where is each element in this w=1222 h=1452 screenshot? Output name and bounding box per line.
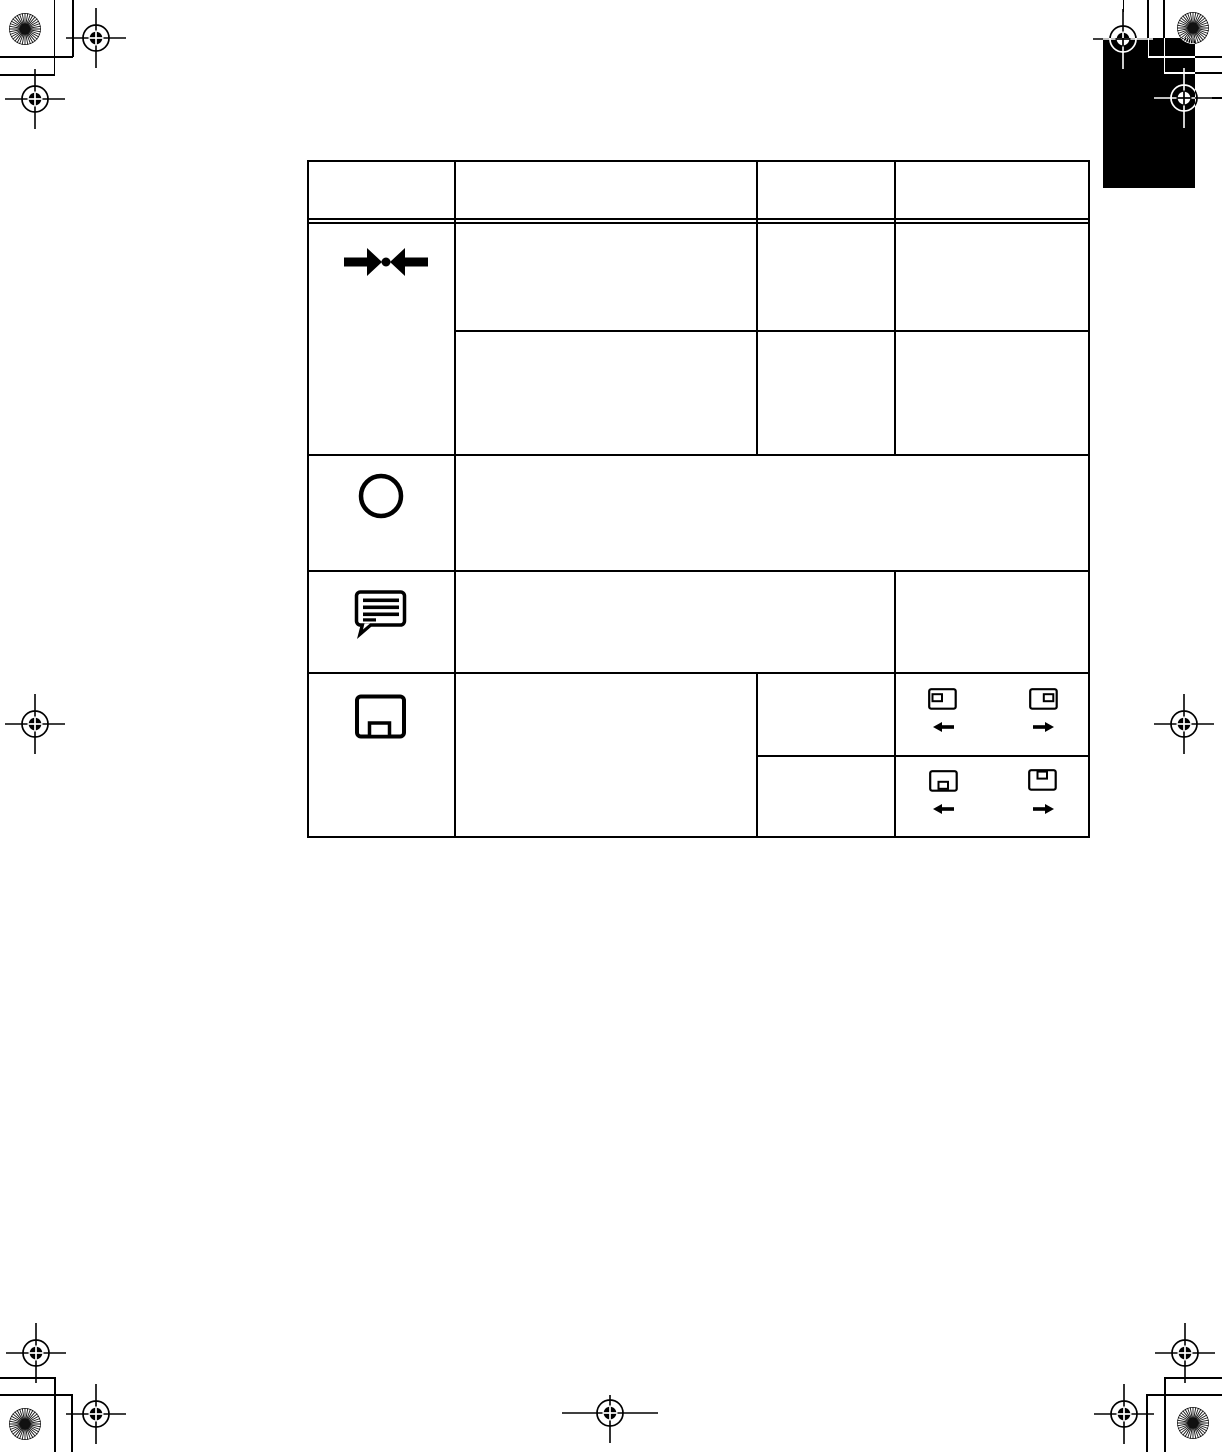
header-cell-1 [307,160,454,218]
table-cell [894,570,1090,672]
screen-menu-icon [355,694,407,739]
row-icon-cell [307,672,454,838]
screen-box-left-icon [928,688,957,710]
table-cell [454,570,894,672]
speech-bubble-icon [354,589,408,641]
manual-page [0,0,1222,1452]
registration-crosshair-icon [65,7,127,69]
trim-mark [0,56,73,58]
table-cell [454,330,756,454]
trim-mark [1164,72,1195,74]
trim-mark [72,0,74,57]
trim-mark [1148,38,1150,57]
trim-mark [1212,97,1222,99]
trim-mark [71,1394,73,1452]
registration-crosshair-icon [1154,1322,1216,1384]
trim-mark [0,1394,72,1396]
registration-crosshair-icon [5,1322,67,1384]
right-arrow-icon [1033,722,1054,732]
osd-table [307,160,1090,838]
trim-mark [1146,1394,1148,1452]
table-cell [894,223,1090,330]
screen-box-right-icon [1029,688,1058,710]
table-cell [454,672,756,838]
row-icon-cell [307,454,454,570]
compress-arrows-icon [343,246,429,278]
trim-mark [1165,1377,1222,1379]
table-cell [756,755,894,838]
trim-mark [0,1377,55,1379]
screen-box-top-icon [1028,769,1057,791]
registration-crosshair-icon [4,693,66,755]
header-cell-3 [756,160,894,218]
registration-crosshair-icon [560,1395,660,1445]
table-cell [756,672,894,755]
registration-crosshair-icon [1103,38,1154,70]
header-rule [307,218,1090,220]
sunburst-circle-icon [9,1408,41,1440]
table-cell [756,223,894,330]
right-arrow-icon [1033,804,1054,814]
screen-box-bottom-icon [929,770,958,792]
trim-mark [54,0,56,75]
table-cell [454,223,756,330]
sunburst-circle-icon [9,13,41,45]
position-controls-vertical [894,755,1090,838]
registration-crosshair-icon [4,68,66,130]
left-arrow-icon [933,722,954,732]
header-cell-4 [894,160,1090,218]
row-icon-cell [307,223,454,454]
trim-mark [0,74,55,76]
table-cell [454,454,1090,570]
trim-mark [1147,1394,1222,1396]
trim-mark [1164,1377,1166,1452]
row-icon-cell [307,570,454,672]
trim-mark [1148,56,1195,58]
sunburst-circle-icon [1177,38,1195,44]
table-cell [894,330,1090,454]
trim-mark [54,1377,56,1452]
registration-crosshair-icon [1153,693,1215,755]
header-cell-2 [454,160,756,218]
table-cell [756,330,894,454]
trim-mark [1123,0,1125,12]
position-controls-horizontal [894,672,1090,755]
registration-crosshair-icon [1153,67,1195,129]
sunburst-circle-icon [1177,1407,1209,1439]
chapter-tab [1103,38,1195,188]
registration-crosshair-icon [65,1383,127,1445]
circle-icon [358,473,404,519]
left-arrow-icon [933,804,954,814]
